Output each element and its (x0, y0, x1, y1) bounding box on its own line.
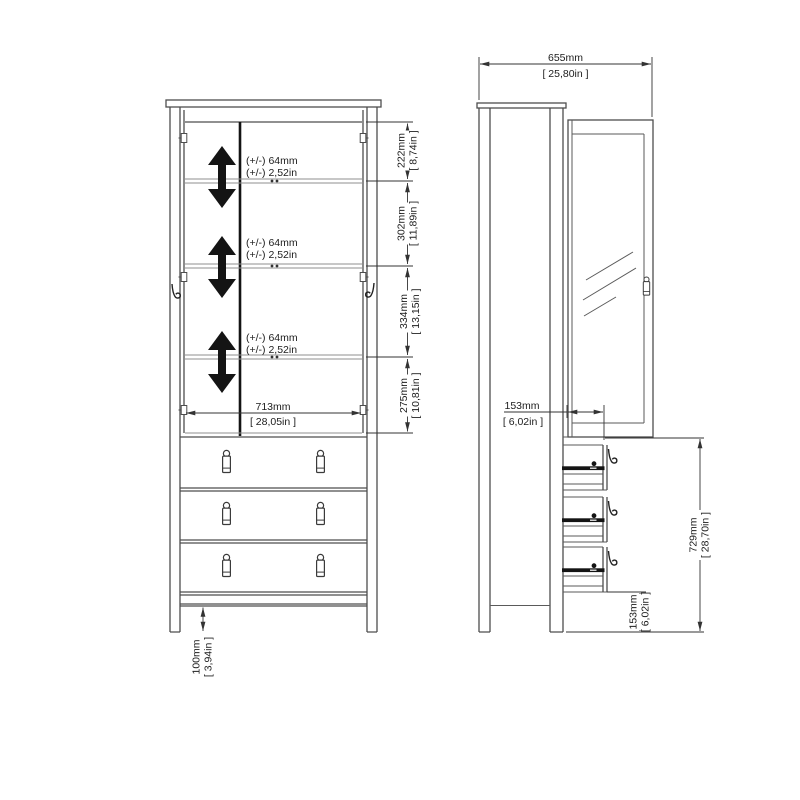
drawer-fronts (180, 488, 367, 606)
svg-text:729mm: 729mm (688, 517, 700, 552)
technical-drawing-page: (+/-) 64mm (+/-) 2,52in (+/-) 64mm (+/-)… (0, 0, 800, 800)
svg-text:[ 6,02in ]: [ 6,02in ] (640, 592, 652, 632)
svg-text:[ 6,02in ]: [ 6,02in ] (503, 416, 543, 428)
svg-text:334mm: 334mm (398, 294, 410, 329)
svg-text:275mm: 275mm (398, 378, 410, 413)
glazed-door (563, 120, 653, 437)
shelf-label-mm: (+/-) 64mm (246, 332, 298, 344)
svg-text:[ 10,81in ]: [ 10,81in ] (410, 372, 422, 418)
shelves (185, 179, 362, 433)
adjustable-shelf-labels: (+/-) 64mm (+/-) 2,52in (+/-) 64mm (+/-)… (246, 155, 298, 356)
dim-shelf-second: 302mm [ 11,89in ] (396, 201, 420, 246)
svg-text:[ 8,74in ]: [ 8,74in ] (408, 130, 420, 170)
svg-text:153mm: 153mm (504, 400, 539, 412)
svg-text:[ 28,70in ]: [ 28,70in ] (700, 512, 712, 558)
shelf-label-in: (+/-) 2,52in (246, 167, 297, 179)
dim-interior-width: 713mm [ 28,05in ] (186, 401, 361, 428)
dim-right-stack: 222mm [ 8,74in ] 302mm [ 11,89in ] 334mm… (366, 122, 422, 433)
door-handle-icon (643, 277, 649, 295)
cabinet-frame (170, 107, 377, 632)
dim-shelf-bottom: 275mm [ 10,81in ] (398, 372, 422, 418)
svg-text:[ 13,15in ]: [ 13,15in ] (410, 288, 422, 334)
svg-text:[ 3,94in ]: [ 3,94in ] (203, 637, 215, 677)
svg-text:100mm: 100mm (191, 639, 203, 674)
open-drawers-side (562, 445, 617, 592)
shelf-label-in: (+/-) 2,52in (246, 344, 297, 356)
dim-leg-height: 100mm [ 3,94in ] (191, 608, 215, 678)
dim-drawer-extension: 153mm [ 6,02in ] (503, 400, 604, 440)
furniture-dimension-diagram: (+/-) 64mm (+/-) 2,52in (+/-) 64mm (+/-)… (0, 0, 800, 800)
svg-text:713mm: 713mm (255, 401, 290, 413)
side-drawer (562, 445, 617, 490)
top-board (166, 100, 381, 107)
shelf-label-mm: (+/-) 64mm (246, 155, 298, 167)
svg-text:[ 11,89in ]: [ 11,89in ] (408, 201, 420, 246)
svg-text:302mm: 302mm (396, 206, 408, 241)
drawer-handle-icons (223, 450, 325, 576)
dim-shelf-third: 334mm [ 13,15in ] (398, 288, 422, 334)
side-drawer (562, 497, 617, 542)
svg-text:[ 25,80in ]: [ 25,80in ] (542, 68, 588, 80)
side-body (479, 108, 563, 632)
side-drawer (562, 547, 617, 592)
dim-base-height: 153mm [ 6,02in ] (607, 592, 652, 632)
door-handle-hook-icons (172, 283, 374, 298)
svg-text:222mm: 222mm (396, 133, 408, 168)
front-view: (+/-) 64mm (+/-) 2,52in (+/-) 64mm (+/-)… (166, 100, 422, 677)
shelf-label-in: (+/-) 2,52in (246, 249, 297, 261)
dim-shelf-top: 222mm [ 8,74in ] (396, 130, 420, 170)
svg-text:153mm: 153mm (628, 594, 640, 629)
top-board-side (477, 103, 566, 108)
side-view: 655mm [ 25,80in ] 153mm [ 6,02in ] 729mm… (477, 52, 712, 632)
svg-text:655mm: 655mm (548, 52, 583, 64)
shelf-label-mm: (+/-) 64mm (246, 237, 298, 249)
glass-pane-lines (583, 252, 636, 316)
svg-text:[ 28,05in ]: [ 28,05in ] (250, 416, 296, 428)
